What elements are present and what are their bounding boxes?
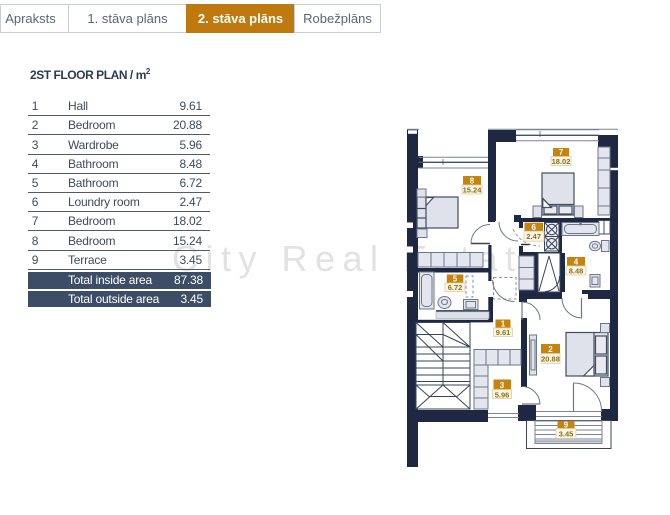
svg-text:8.48: 8.48 [569,267,584,276]
svg-text:7: 7 [559,148,564,157]
svg-text:20.88: 20.88 [541,355,560,364]
svg-text:3: 3 [500,381,505,390]
svg-text:6.72: 6.72 [448,283,463,292]
svg-text:8: 8 [470,177,475,186]
svg-text:2: 2 [548,345,553,354]
svg-text:5.96: 5.96 [495,391,510,400]
svg-text:18.02: 18.02 [552,157,571,166]
svg-text:6: 6 [531,223,536,232]
svg-text:3.45: 3.45 [559,430,574,439]
svg-text:2.47: 2.47 [526,232,541,241]
svg-text:9.61: 9.61 [496,328,511,337]
svg-text:4: 4 [574,258,579,267]
svg-text:15.24: 15.24 [463,186,483,195]
